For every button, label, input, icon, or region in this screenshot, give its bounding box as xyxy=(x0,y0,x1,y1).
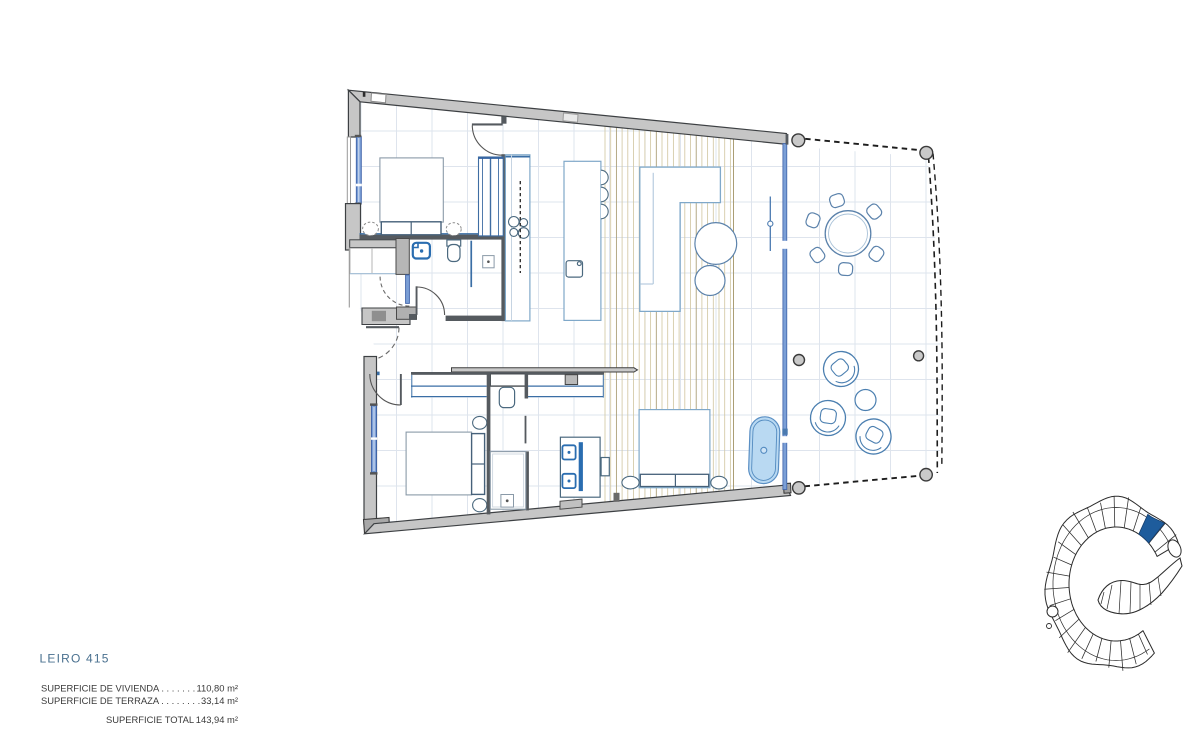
svg-text:LEIRO 415: LEIRO 415 xyxy=(40,652,110,666)
svg-text:33,14 m²: 33,14 m² xyxy=(201,695,238,706)
svg-text:SUPERFICIE DE VIVIENDA . . . .: SUPERFICIE DE VIVIENDA . . . . . . . . . xyxy=(41,683,206,694)
svg-text:SUPERFICIE TOTAL: SUPERFICIE TOTAL xyxy=(106,714,194,725)
svg-text:SUPERFICIE DE TERRAZA . . . .: SUPERFICIE DE TERRAZA . . . . . . . . . … xyxy=(41,695,211,706)
svg-text:110,80 m²: 110,80 m² xyxy=(196,683,238,694)
svg-text:143,94 m²: 143,94 m² xyxy=(196,714,238,725)
